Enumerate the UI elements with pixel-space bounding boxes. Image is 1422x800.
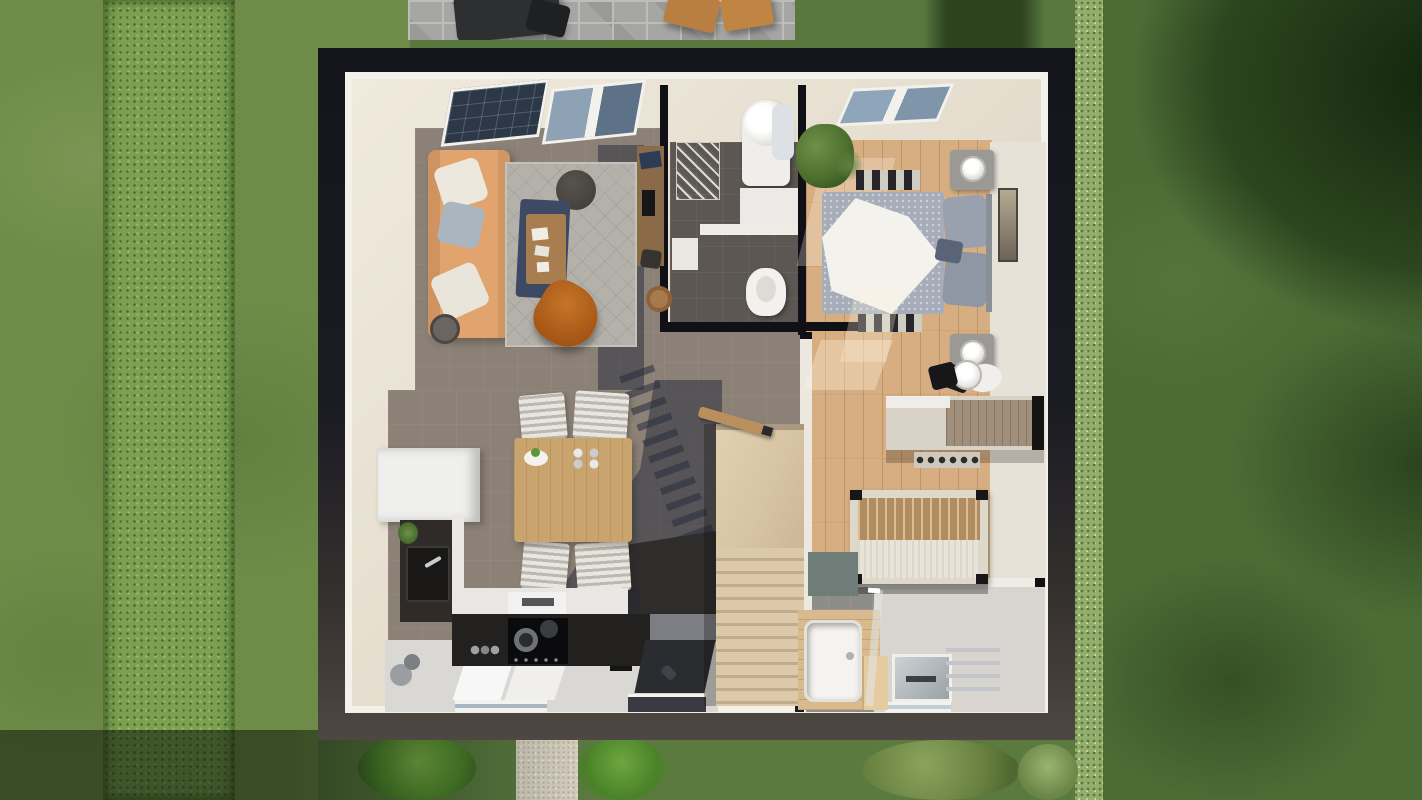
roof-window-glazing [441, 79, 550, 147]
dining-chair [574, 540, 631, 594]
towel-radiator [946, 648, 1000, 696]
glass-screen-top [868, 587, 880, 593]
pot [514, 628, 538, 652]
hedge-row-right [1073, 0, 1103, 800]
stair-landing [716, 424, 804, 550]
pot [540, 620, 558, 638]
floorplan-render [0, 0, 1422, 800]
wall-cap [1035, 578, 1045, 587]
bed-corner [976, 574, 988, 584]
toilet [746, 268, 786, 316]
bedroom2-desk-lip [886, 396, 950, 408]
lawn-top-left [318, 0, 410, 48]
lawn-right-with-tree-shadow [1075, 0, 1422, 800]
hedge-row-left [103, 0, 235, 800]
drying-rack [676, 142, 720, 200]
patio-wooden-chair [663, 0, 722, 34]
dining-chair [518, 392, 568, 442]
patio [408, 0, 795, 40]
wall-art [998, 188, 1018, 262]
wall-cap [800, 332, 812, 339]
stair-steps [716, 548, 804, 706]
slatted-bed-frame [850, 490, 988, 584]
toilet-lid [756, 276, 776, 302]
white-cabinet-fridge [378, 448, 480, 522]
stool [646, 286, 672, 312]
cups [570, 446, 604, 470]
bathroom-window [885, 702, 951, 712]
green-apple [531, 448, 540, 457]
book [531, 227, 548, 241]
bedroom-rug-strip [856, 170, 920, 190]
extractor-slot [522, 598, 554, 606]
roof-window [542, 79, 646, 144]
dining-chair [572, 390, 629, 442]
sofa-pillow [436, 200, 486, 250]
cooktop-knobs [512, 658, 564, 662]
bedside-lamp [960, 156, 986, 182]
bed-corner [976, 490, 988, 500]
kitchen-window [455, 700, 547, 712]
patio-wooden-chair [720, 0, 774, 32]
wall [660, 322, 806, 332]
bathtub [804, 620, 862, 702]
front-door [628, 697, 706, 712]
teal-tile-patch [808, 552, 858, 596]
bed-corner [850, 490, 862, 500]
partition-wall [700, 224, 798, 235]
desk-chair [640, 249, 662, 270]
dining-chair [520, 540, 570, 592]
shoe [660, 664, 677, 681]
kitchen-plant [398, 522, 418, 544]
bedroom-roof-window [836, 83, 955, 126]
bedroom2-desk-wood [946, 400, 1042, 446]
kitchen-sink [406, 546, 450, 602]
bed-slats [858, 498, 980, 540]
book [537, 262, 550, 273]
wall [798, 85, 806, 335]
headboard [986, 194, 992, 312]
book [534, 245, 549, 257]
side-table [430, 314, 460, 344]
laptop [639, 151, 662, 170]
shelf [672, 238, 698, 270]
double-bed [822, 192, 992, 314]
bush [862, 740, 1020, 800]
tub-faucet [846, 652, 854, 660]
towels [772, 104, 794, 160]
drum-lamp [952, 360, 982, 390]
shoe-shelf [914, 452, 980, 468]
bush [1018, 744, 1078, 800]
spice-jars [470, 644, 500, 656]
bedroom2-shelf-bar [1032, 396, 1044, 450]
accent-cushion [934, 238, 963, 264]
desk-monitor [642, 190, 655, 216]
shower-drain [906, 676, 936, 682]
ground-shadow [0, 730, 645, 800]
pot-lid [404, 654, 420, 670]
bed-panel [858, 540, 980, 578]
